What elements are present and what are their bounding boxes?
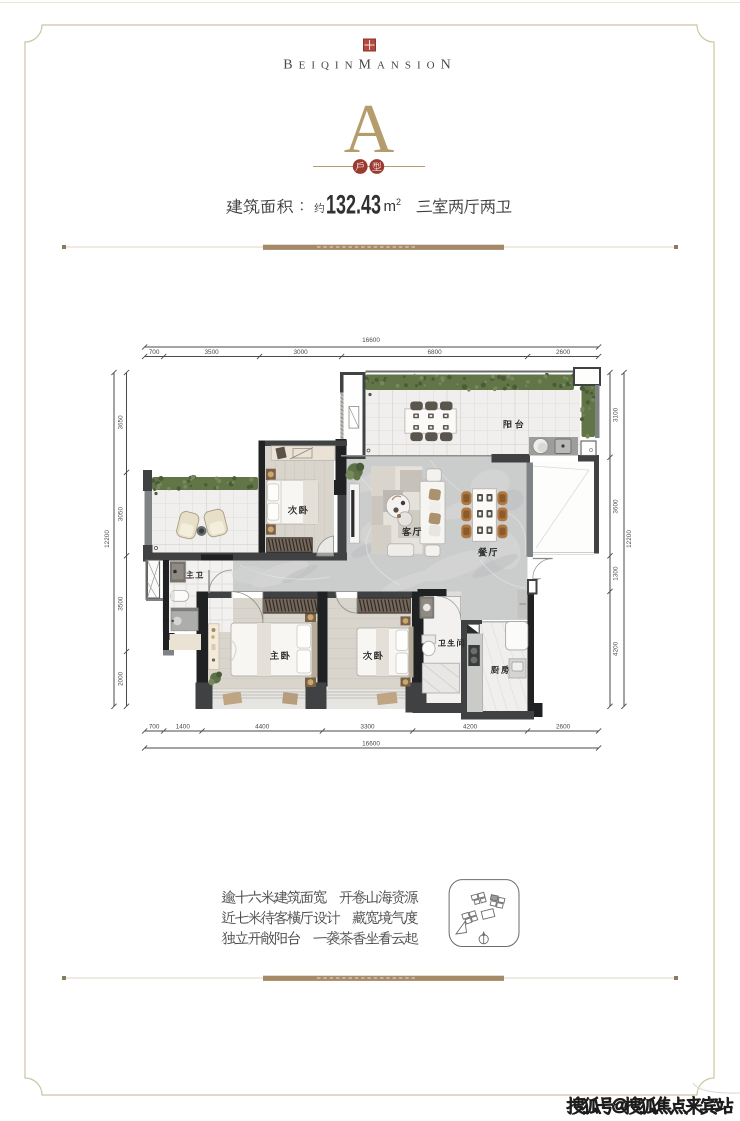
- svg-text:1300: 1300: [613, 566, 620, 581]
- svg-text:700: 700: [149, 724, 160, 731]
- svg-text:16600: 16600: [362, 337, 380, 344]
- svg-text:3600: 3600: [612, 499, 619, 514]
- svg-text:132.43: 132.43: [326, 190, 381, 220]
- svg-text:3500: 3500: [117, 596, 124, 611]
- svg-text:12200: 12200: [626, 530, 633, 548]
- svg-text:6800: 6800: [427, 349, 442, 356]
- svg-text:2600: 2600: [556, 724, 571, 731]
- svg-text:A: A: [344, 91, 395, 168]
- svg-text:4200: 4200: [463, 724, 478, 731]
- svg-text:700: 700: [149, 349, 160, 356]
- svg-text:2600: 2600: [556, 349, 571, 356]
- svg-text:2000: 2000: [118, 671, 125, 686]
- svg-text:16600: 16600: [362, 741, 380, 748]
- svg-text:3500: 3500: [204, 349, 219, 356]
- svg-text:4200: 4200: [612, 641, 619, 656]
- svg-text:3100: 3100: [613, 407, 620, 422]
- svg-text:3000: 3000: [293, 349, 308, 356]
- svg-text:1400: 1400: [176, 724, 191, 731]
- svg-text:3650: 3650: [117, 415, 124, 430]
- svg-text:3300: 3300: [360, 724, 375, 731]
- svg-text:BEIQINMANSION: BEIQINMANSION: [283, 58, 456, 73]
- svg-text:4400: 4400: [255, 724, 270, 731]
- svg-text:12200: 12200: [104, 530, 111, 548]
- svg-text:3050: 3050: [118, 507, 125, 522]
